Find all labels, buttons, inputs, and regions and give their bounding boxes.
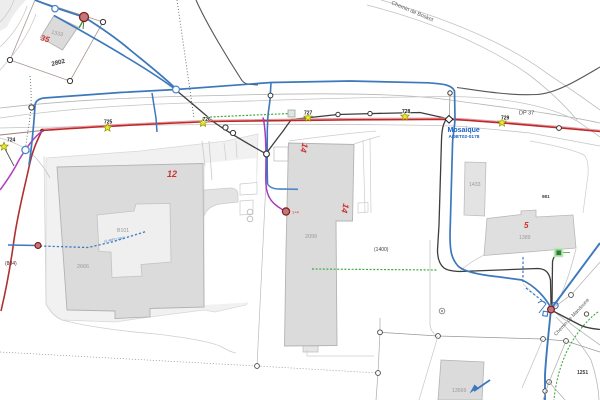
svg-text:(804): (804) — [5, 261, 17, 267]
svg-text:1251: 1251 — [577, 370, 588, 376]
svg-text:(1400): (1400) — [374, 247, 389, 253]
svg-text:1389: 1389 — [519, 235, 531, 241]
svg-text:729: 729 — [501, 116, 510, 122]
svg-text:ADBT02-0178: ADBT02-0178 — [449, 134, 480, 140]
svg-text:726: 726 — [203, 117, 212, 123]
svg-text:725: 725 — [104, 120, 113, 126]
svg-text:13569: 13569 — [452, 388, 467, 394]
svg-text:981: 981 — [542, 194, 550, 199]
svg-text:2666: 2666 — [77, 264, 89, 270]
svg-text:5: 5 — [524, 221, 529, 230]
svg-text:2099: 2099 — [305, 234, 317, 240]
svg-text:1433: 1433 — [469, 182, 481, 188]
svg-text:12: 12 — [167, 169, 177, 179]
svg-text:1+4: 1+4 — [292, 210, 300, 215]
svg-text:Mosaique: Mosaique — [448, 127, 480, 134]
svg-text:724: 724 — [7, 138, 16, 144]
svg-text:728: 728 — [402, 109, 411, 115]
svg-text:B101: B101 — [117, 228, 129, 234]
svg-text:727: 727 — [304, 111, 313, 117]
svg-text:DP 37: DP 37 — [519, 111, 534, 117]
